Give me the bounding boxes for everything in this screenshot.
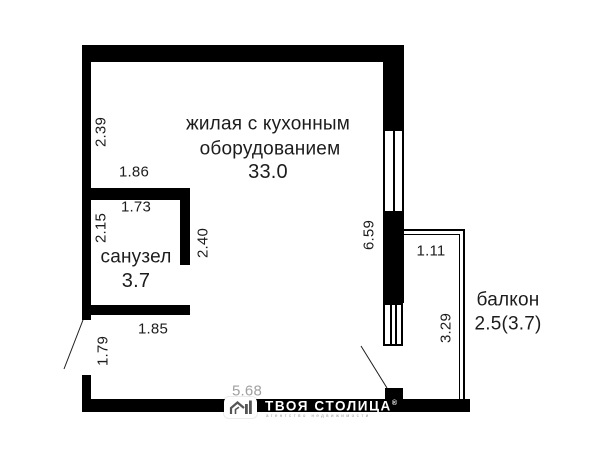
dimension-balcony-top-width: 1.11	[417, 244, 446, 259]
dimension-right-wall-height: 6.59	[362, 220, 377, 250]
balcony-label: балкон	[477, 291, 540, 310]
balcony-area: 2.5(3.7)	[474, 315, 541, 334]
floor-plan: жилая с кухонным оборудованием 33.0 сану…	[0, 0, 612, 460]
bathroom-area: 3.7	[122, 271, 150, 291]
living-room-label-line2: оборудованием	[200, 140, 341, 159]
dimension-balcony-right-height: 3.29	[439, 313, 454, 343]
registered-mark: ®	[392, 400, 397, 407]
dimension-living-left-height: 2.39	[94, 117, 109, 147]
dimension-bathroom-top-width: 1.86	[119, 165, 149, 180]
watermark-brand-text: ТВОЯ СТОЛИЦА®	[265, 399, 397, 413]
bathroom-label: санузел	[101, 248, 172, 267]
brand-house-logo-icon	[229, 400, 253, 415]
dimension-bathroom-right-height: 2.40	[196, 228, 211, 258]
living-room-area: 33.0	[248, 162, 288, 182]
dimension-bathroom-inner-width: 1.73	[121, 200, 151, 215]
living-room-label-line1: жилая с кухонным	[186, 115, 350, 134]
watermark-tagline: агентство недвижимости	[266, 414, 371, 419]
entrance-door-swing-line	[64, 320, 83, 369]
dimension-bathroom-inner-height: 2.15	[94, 213, 109, 243]
dimension-entry-wall-height: 1.79	[96, 336, 111, 366]
watermark-brand-name: ТВОЯ СТОЛИЦА	[265, 398, 392, 413]
watermark-logo-box	[224, 397, 257, 418]
balcony-door-swing-line	[361, 346, 387, 388]
dimension-bathroom-bottom-width: 1.85	[138, 322, 168, 337]
